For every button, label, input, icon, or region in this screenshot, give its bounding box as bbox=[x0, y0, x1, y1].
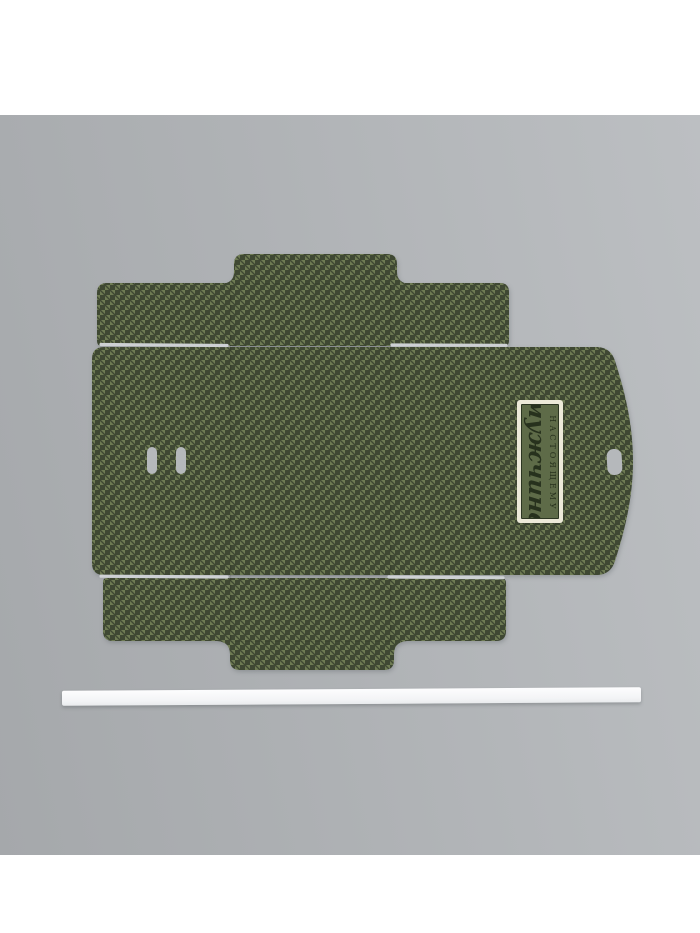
photo-backdrop: НАСТОЯЩЕМУ мужчине bbox=[0, 115, 700, 855]
handle-slot-left-2 bbox=[176, 447, 186, 474]
box-bottom-tuck-tab bbox=[217, 641, 407, 670]
label-main-text: мужчине bbox=[524, 404, 548, 519]
box-top-flap-row bbox=[97, 283, 509, 346]
handle-slot-right bbox=[606, 449, 622, 476]
giftbox-label-frame: НАСТОЯЩЕМУ мужчине bbox=[521, 404, 559, 519]
product-photo-page: НАСТОЯЩЕМУ мужчине bbox=[0, 0, 700, 933]
giftbox-label: НАСТОЯЩЕМУ мужчине bbox=[517, 400, 563, 523]
giftbox-label-text-block: НАСТОЯЩЕМУ мужчине bbox=[522, 406, 558, 518]
handle-slot-left-1 bbox=[147, 447, 157, 474]
box-top-tuck-tab bbox=[221, 254, 410, 284]
die-cut-slit-bottom-left bbox=[101, 576, 227, 577]
unfolded-giftbox-dieline bbox=[0, 115, 700, 855]
die-cut-slit-top-left bbox=[101, 345, 227, 346]
die-cut-slit-bottom-right bbox=[389, 577, 503, 578]
top-white-band bbox=[0, 0, 700, 115]
bottom-white-band bbox=[0, 855, 700, 933]
box-bottom-flap-row bbox=[103, 578, 506, 641]
